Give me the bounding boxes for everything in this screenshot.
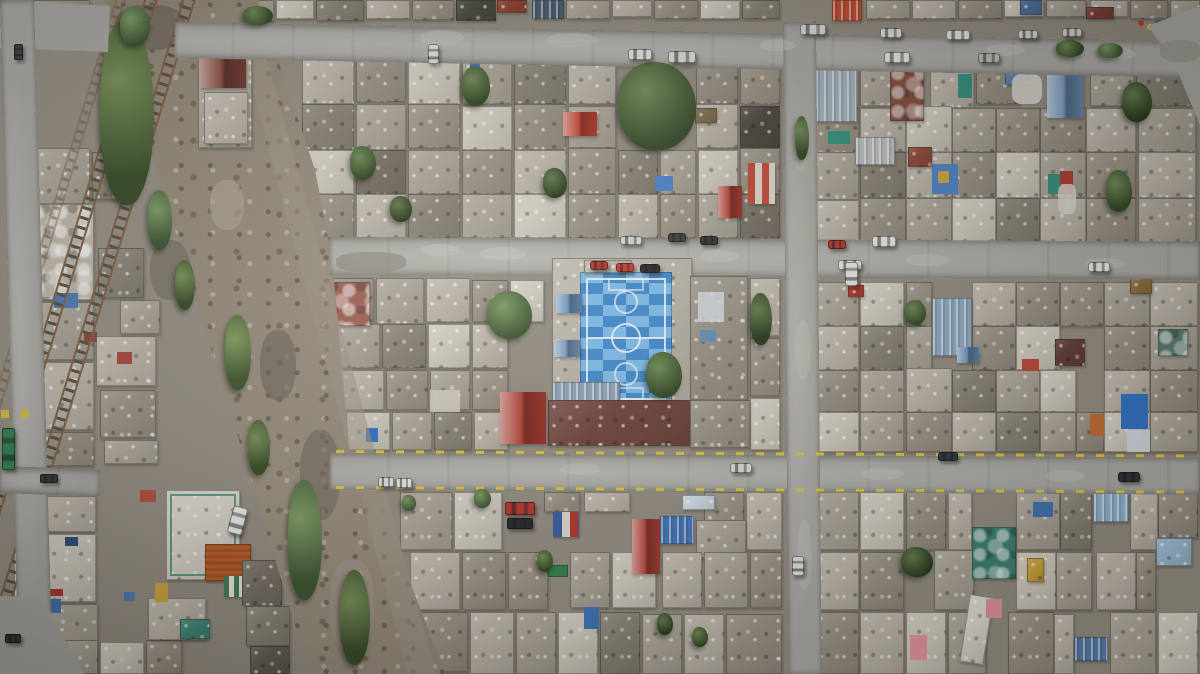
vegetation bbox=[175, 260, 195, 310]
corrugated-roof bbox=[815, 64, 857, 122]
building-parcel bbox=[815, 200, 859, 242]
white-car bbox=[1062, 28, 1082, 37]
building-parcel bbox=[408, 150, 460, 194]
silver-roof bbox=[855, 137, 895, 165]
blue-gable-shed bbox=[554, 340, 580, 357]
building-parcel bbox=[996, 108, 1040, 152]
tree bbox=[750, 293, 772, 345]
maroon-roof bbox=[548, 400, 690, 446]
building-parcel bbox=[544, 492, 580, 512]
tree bbox=[901, 547, 933, 577]
building-parcel bbox=[1136, 552, 1156, 610]
tree bbox=[474, 489, 491, 508]
dark-car bbox=[40, 474, 58, 483]
building-parcel bbox=[250, 646, 290, 674]
white-panels bbox=[1127, 430, 1150, 452]
maroon-roof bbox=[1086, 7, 1114, 19]
pavement-patch bbox=[480, 247, 526, 260]
building-parcel bbox=[242, 560, 282, 606]
white-van bbox=[396, 478, 412, 488]
building-parcel bbox=[566, 0, 610, 19]
building-parcel bbox=[996, 412, 1040, 452]
building-parcel bbox=[742, 0, 780, 19]
red-car bbox=[590, 261, 608, 270]
solar-panel bbox=[65, 537, 78, 546]
mustard-roof bbox=[1130, 278, 1152, 294]
white-truck bbox=[872, 236, 896, 247]
building-parcel bbox=[366, 0, 410, 19]
building-parcel bbox=[514, 104, 566, 150]
red-car bbox=[616, 263, 634, 272]
yellow-structure bbox=[938, 171, 949, 183]
dark-truck bbox=[507, 518, 533, 529]
court-center-circle bbox=[611, 323, 641, 353]
building-parcel bbox=[584, 492, 630, 512]
building-parcel bbox=[1110, 612, 1156, 674]
dark-car bbox=[5, 634, 21, 643]
dark-car bbox=[1118, 472, 1140, 482]
building-parcel bbox=[654, 0, 698, 19]
building-parcel bbox=[104, 440, 158, 464]
dark-car bbox=[938, 452, 958, 461]
building-parcel bbox=[1060, 492, 1092, 550]
blue-shed bbox=[700, 330, 716, 342]
tree bbox=[488, 291, 532, 339]
building-parcel bbox=[1130, 0, 1168, 19]
blue-tarp bbox=[655, 176, 673, 191]
building-parcel bbox=[1158, 492, 1198, 538]
white-tarp bbox=[1012, 74, 1042, 104]
light-blue-roof bbox=[1156, 538, 1192, 566]
tree bbox=[350, 146, 376, 180]
building-parcel bbox=[618, 194, 658, 238]
tree bbox=[795, 116, 809, 160]
red-tarp bbox=[1022, 359, 1039, 371]
court-key-box bbox=[608, 278, 644, 291]
building-parcel bbox=[246, 606, 290, 646]
orange-structure bbox=[1090, 414, 1104, 436]
white-van bbox=[946, 30, 970, 40]
red-gable-roof bbox=[563, 112, 597, 136]
building-parcel bbox=[906, 198, 952, 242]
white-van bbox=[845, 262, 858, 286]
pavement-patch bbox=[905, 254, 949, 266]
building-parcel bbox=[516, 612, 556, 674]
dark-car bbox=[700, 236, 718, 245]
tree bbox=[905, 300, 926, 325]
brown-roof bbox=[695, 108, 717, 123]
street-middle bbox=[330, 237, 1200, 280]
blue-shed bbox=[957, 347, 979, 363]
building-parcel bbox=[996, 370, 1040, 412]
dark-car bbox=[640, 264, 660, 273]
blue-metal-roof bbox=[660, 516, 694, 544]
building-parcel bbox=[462, 552, 506, 610]
building-parcel bbox=[996, 152, 1040, 198]
aerial-photo bbox=[0, 0, 1200, 674]
vegetation bbox=[340, 570, 370, 665]
red-white-roof bbox=[748, 163, 775, 204]
red-panel-roof bbox=[570, 512, 578, 537]
building-parcel bbox=[356, 58, 406, 102]
pavement-patch bbox=[545, 33, 597, 47]
blue-roof bbox=[1020, 0, 1042, 15]
tree bbox=[657, 613, 673, 635]
red-roof bbox=[117, 352, 132, 364]
building-parcel bbox=[612, 0, 652, 17]
building-parcel bbox=[276, 0, 314, 19]
building-parcel bbox=[302, 58, 354, 104]
tree bbox=[462, 66, 490, 106]
building-parcel bbox=[815, 412, 859, 452]
vegetation bbox=[288, 480, 322, 600]
red-gable-roof bbox=[500, 392, 546, 444]
dark-car bbox=[14, 44, 23, 60]
teal-roof bbox=[1158, 329, 1188, 356]
court-element bbox=[690, 400, 750, 448]
building-parcel bbox=[700, 0, 740, 19]
blue-tarp bbox=[1033, 502, 1053, 517]
building-parcel bbox=[1104, 326, 1150, 370]
building-parcel bbox=[815, 492, 859, 550]
white-van bbox=[730, 463, 752, 473]
rubble bbox=[210, 180, 244, 230]
building-parcel bbox=[746, 492, 782, 550]
red-gable-roof bbox=[632, 519, 660, 574]
building-parcel bbox=[1016, 492, 1060, 550]
building-parcel bbox=[704, 552, 748, 608]
red-tarp bbox=[140, 490, 156, 502]
building-parcel bbox=[316, 0, 364, 21]
white-van bbox=[800, 24, 826, 35]
white-car bbox=[792, 556, 804, 576]
pale-panel-roof bbox=[682, 495, 715, 510]
building-parcel bbox=[568, 148, 616, 194]
building-parcel bbox=[408, 58, 460, 104]
pavement-patch bbox=[560, 463, 600, 475]
red-roof bbox=[497, 0, 527, 13]
white-van bbox=[378, 477, 394, 487]
tree bbox=[243, 6, 273, 25]
vegetation bbox=[148, 190, 172, 250]
pavement-patch bbox=[420, 244, 460, 256]
building-parcel bbox=[866, 0, 910, 19]
building-parcel bbox=[408, 104, 460, 148]
building-parcel bbox=[1016, 282, 1060, 326]
building-parcel bbox=[462, 194, 512, 238]
metal-roof bbox=[532, 0, 564, 19]
building-parcel bbox=[952, 108, 996, 152]
building-parcel bbox=[1138, 198, 1196, 242]
vegetation bbox=[248, 420, 270, 475]
pink-tarp bbox=[986, 599, 1002, 618]
pavement-patch bbox=[700, 250, 740, 262]
building-parcel bbox=[662, 552, 702, 608]
red-car bbox=[828, 240, 846, 249]
building-parcel bbox=[1008, 612, 1054, 674]
teal-roof bbox=[972, 527, 1016, 579]
building-parcel bbox=[860, 552, 904, 610]
building-parcel bbox=[1130, 492, 1158, 550]
pavement-patch bbox=[797, 520, 812, 590]
building-parcel bbox=[434, 412, 472, 450]
rust-roof bbox=[890, 65, 924, 121]
vegetated-lot bbox=[618, 62, 696, 150]
red-panel-roof bbox=[908, 147, 932, 167]
tree bbox=[1122, 82, 1152, 122]
building-parcel bbox=[750, 338, 780, 396]
white-van bbox=[1088, 262, 1110, 272]
building-parcel bbox=[815, 370, 859, 412]
pavement-patch bbox=[1045, 470, 1085, 482]
trackside-red-roof bbox=[200, 58, 246, 88]
building-parcel bbox=[912, 0, 956, 19]
building-parcel bbox=[860, 282, 904, 326]
white-van bbox=[428, 44, 439, 64]
white-car bbox=[1018, 30, 1038, 39]
silver-car bbox=[620, 236, 642, 245]
pavement-patch bbox=[420, 30, 464, 46]
building-parcel bbox=[470, 612, 514, 674]
white-van bbox=[884, 52, 910, 63]
building-parcel bbox=[906, 326, 932, 370]
vegetation bbox=[225, 315, 251, 390]
building-parcel bbox=[815, 326, 859, 370]
building-parcel bbox=[1158, 612, 1198, 674]
building-parcel bbox=[426, 278, 470, 322]
building-parcel bbox=[120, 300, 160, 334]
building-parcel bbox=[906, 492, 946, 550]
building-parcel bbox=[100, 390, 156, 438]
red-roof bbox=[832, 0, 862, 21]
building-parcel bbox=[428, 324, 470, 368]
tree bbox=[543, 168, 567, 198]
building-parcel bbox=[906, 368, 952, 412]
vegetation bbox=[120, 6, 150, 46]
building-parcel bbox=[726, 614, 782, 674]
yellow-structure bbox=[1027, 558, 1044, 582]
tree bbox=[692, 627, 708, 647]
building-parcel bbox=[860, 326, 904, 370]
building-parcel bbox=[376, 278, 424, 324]
building-parcel bbox=[356, 104, 406, 150]
playground-dot bbox=[1138, 20, 1144, 26]
white-truck bbox=[668, 51, 696, 63]
building-parcel bbox=[952, 152, 996, 198]
rooftop-clutter bbox=[430, 390, 460, 412]
building-parcel bbox=[860, 612, 904, 674]
red-gable-roof bbox=[718, 186, 742, 218]
tree bbox=[646, 352, 682, 398]
rubble bbox=[260, 330, 296, 400]
building-parcel bbox=[514, 194, 566, 238]
pavement-patch bbox=[860, 468, 904, 480]
building-parcel bbox=[1040, 370, 1076, 412]
building-parcel bbox=[408, 194, 460, 238]
red-truck bbox=[505, 502, 535, 515]
crosswalk-marking bbox=[1, 410, 32, 418]
building-parcel bbox=[740, 106, 780, 148]
building-parcel bbox=[146, 640, 182, 674]
building-parcel bbox=[1150, 370, 1198, 412]
building-parcel bbox=[386, 370, 428, 410]
building-parcel bbox=[1150, 412, 1198, 452]
building-parcel bbox=[860, 492, 904, 550]
building-parcel bbox=[100, 642, 144, 674]
building-parcel bbox=[750, 398, 780, 450]
building-parcel bbox=[860, 412, 904, 452]
building-parcel bbox=[570, 552, 610, 608]
teal-roof bbox=[958, 74, 972, 98]
teal-roof bbox=[180, 619, 210, 639]
dark-car bbox=[668, 233, 686, 242]
building-parcel bbox=[1056, 552, 1092, 610]
building-parcel bbox=[462, 106, 512, 150]
building-parcel bbox=[1096, 552, 1136, 610]
building-parcel bbox=[952, 198, 996, 242]
green-container bbox=[828, 131, 850, 144]
building-parcel bbox=[1138, 152, 1196, 198]
yellow-structure bbox=[155, 583, 168, 602]
tree bbox=[1106, 170, 1132, 212]
building-parcel bbox=[660, 194, 696, 238]
wet-patch bbox=[336, 252, 406, 272]
building-parcel bbox=[382, 324, 426, 368]
red-roof bbox=[848, 285, 864, 297]
railway-element bbox=[204, 92, 248, 144]
building-parcel bbox=[1060, 282, 1104, 326]
building-parcel bbox=[568, 194, 616, 238]
pavement-patch bbox=[795, 320, 811, 380]
tree bbox=[1056, 40, 1084, 57]
wet-patch bbox=[1160, 40, 1200, 62]
building-parcel bbox=[462, 150, 512, 194]
blue-gable-shed bbox=[556, 294, 582, 313]
building-parcel bbox=[456, 0, 496, 21]
white-van bbox=[880, 28, 902, 38]
building-parcel bbox=[972, 282, 1016, 326]
blue-tarp bbox=[584, 607, 599, 629]
rooftop-clutter bbox=[698, 292, 724, 322]
pink-tarp bbox=[910, 635, 927, 660]
building-parcel bbox=[996, 198, 1040, 242]
building-parcel bbox=[815, 152, 859, 200]
building-parcel bbox=[568, 60, 616, 104]
building-parcel bbox=[860, 370, 904, 412]
building-parcel bbox=[618, 150, 658, 194]
building-parcel bbox=[1046, 0, 1086, 17]
building-parcel bbox=[952, 412, 996, 452]
building-parcel bbox=[392, 412, 432, 450]
white-tarp bbox=[1058, 184, 1076, 214]
court-circle bbox=[614, 290, 638, 314]
building-parcel bbox=[302, 104, 354, 150]
building-parcel bbox=[412, 0, 454, 20]
building-parcel bbox=[410, 552, 460, 610]
tree bbox=[402, 495, 416, 511]
silver-car bbox=[978, 53, 1000, 63]
blue-tarp bbox=[1121, 394, 1148, 429]
building-parcel bbox=[600, 612, 640, 674]
building-parcel bbox=[952, 370, 996, 412]
maroon-roof bbox=[1055, 339, 1085, 366]
building-parcel bbox=[906, 412, 952, 452]
building-parcel bbox=[958, 0, 1002, 19]
blue-roof bbox=[1074, 637, 1108, 661]
building-parcel bbox=[1150, 282, 1198, 326]
building-parcel bbox=[815, 552, 859, 610]
tree bbox=[390, 196, 412, 222]
white-truck bbox=[628, 49, 652, 60]
building-parcel bbox=[750, 552, 782, 608]
building-parcel bbox=[1054, 614, 1074, 674]
tree bbox=[537, 550, 553, 572]
tree bbox=[1098, 43, 1123, 58]
green-bus bbox=[2, 428, 15, 470]
pavement-patch bbox=[760, 39, 796, 51]
building-parcel bbox=[1040, 412, 1076, 452]
building-parcel bbox=[948, 492, 972, 550]
blue-tarp bbox=[124, 592, 135, 601]
